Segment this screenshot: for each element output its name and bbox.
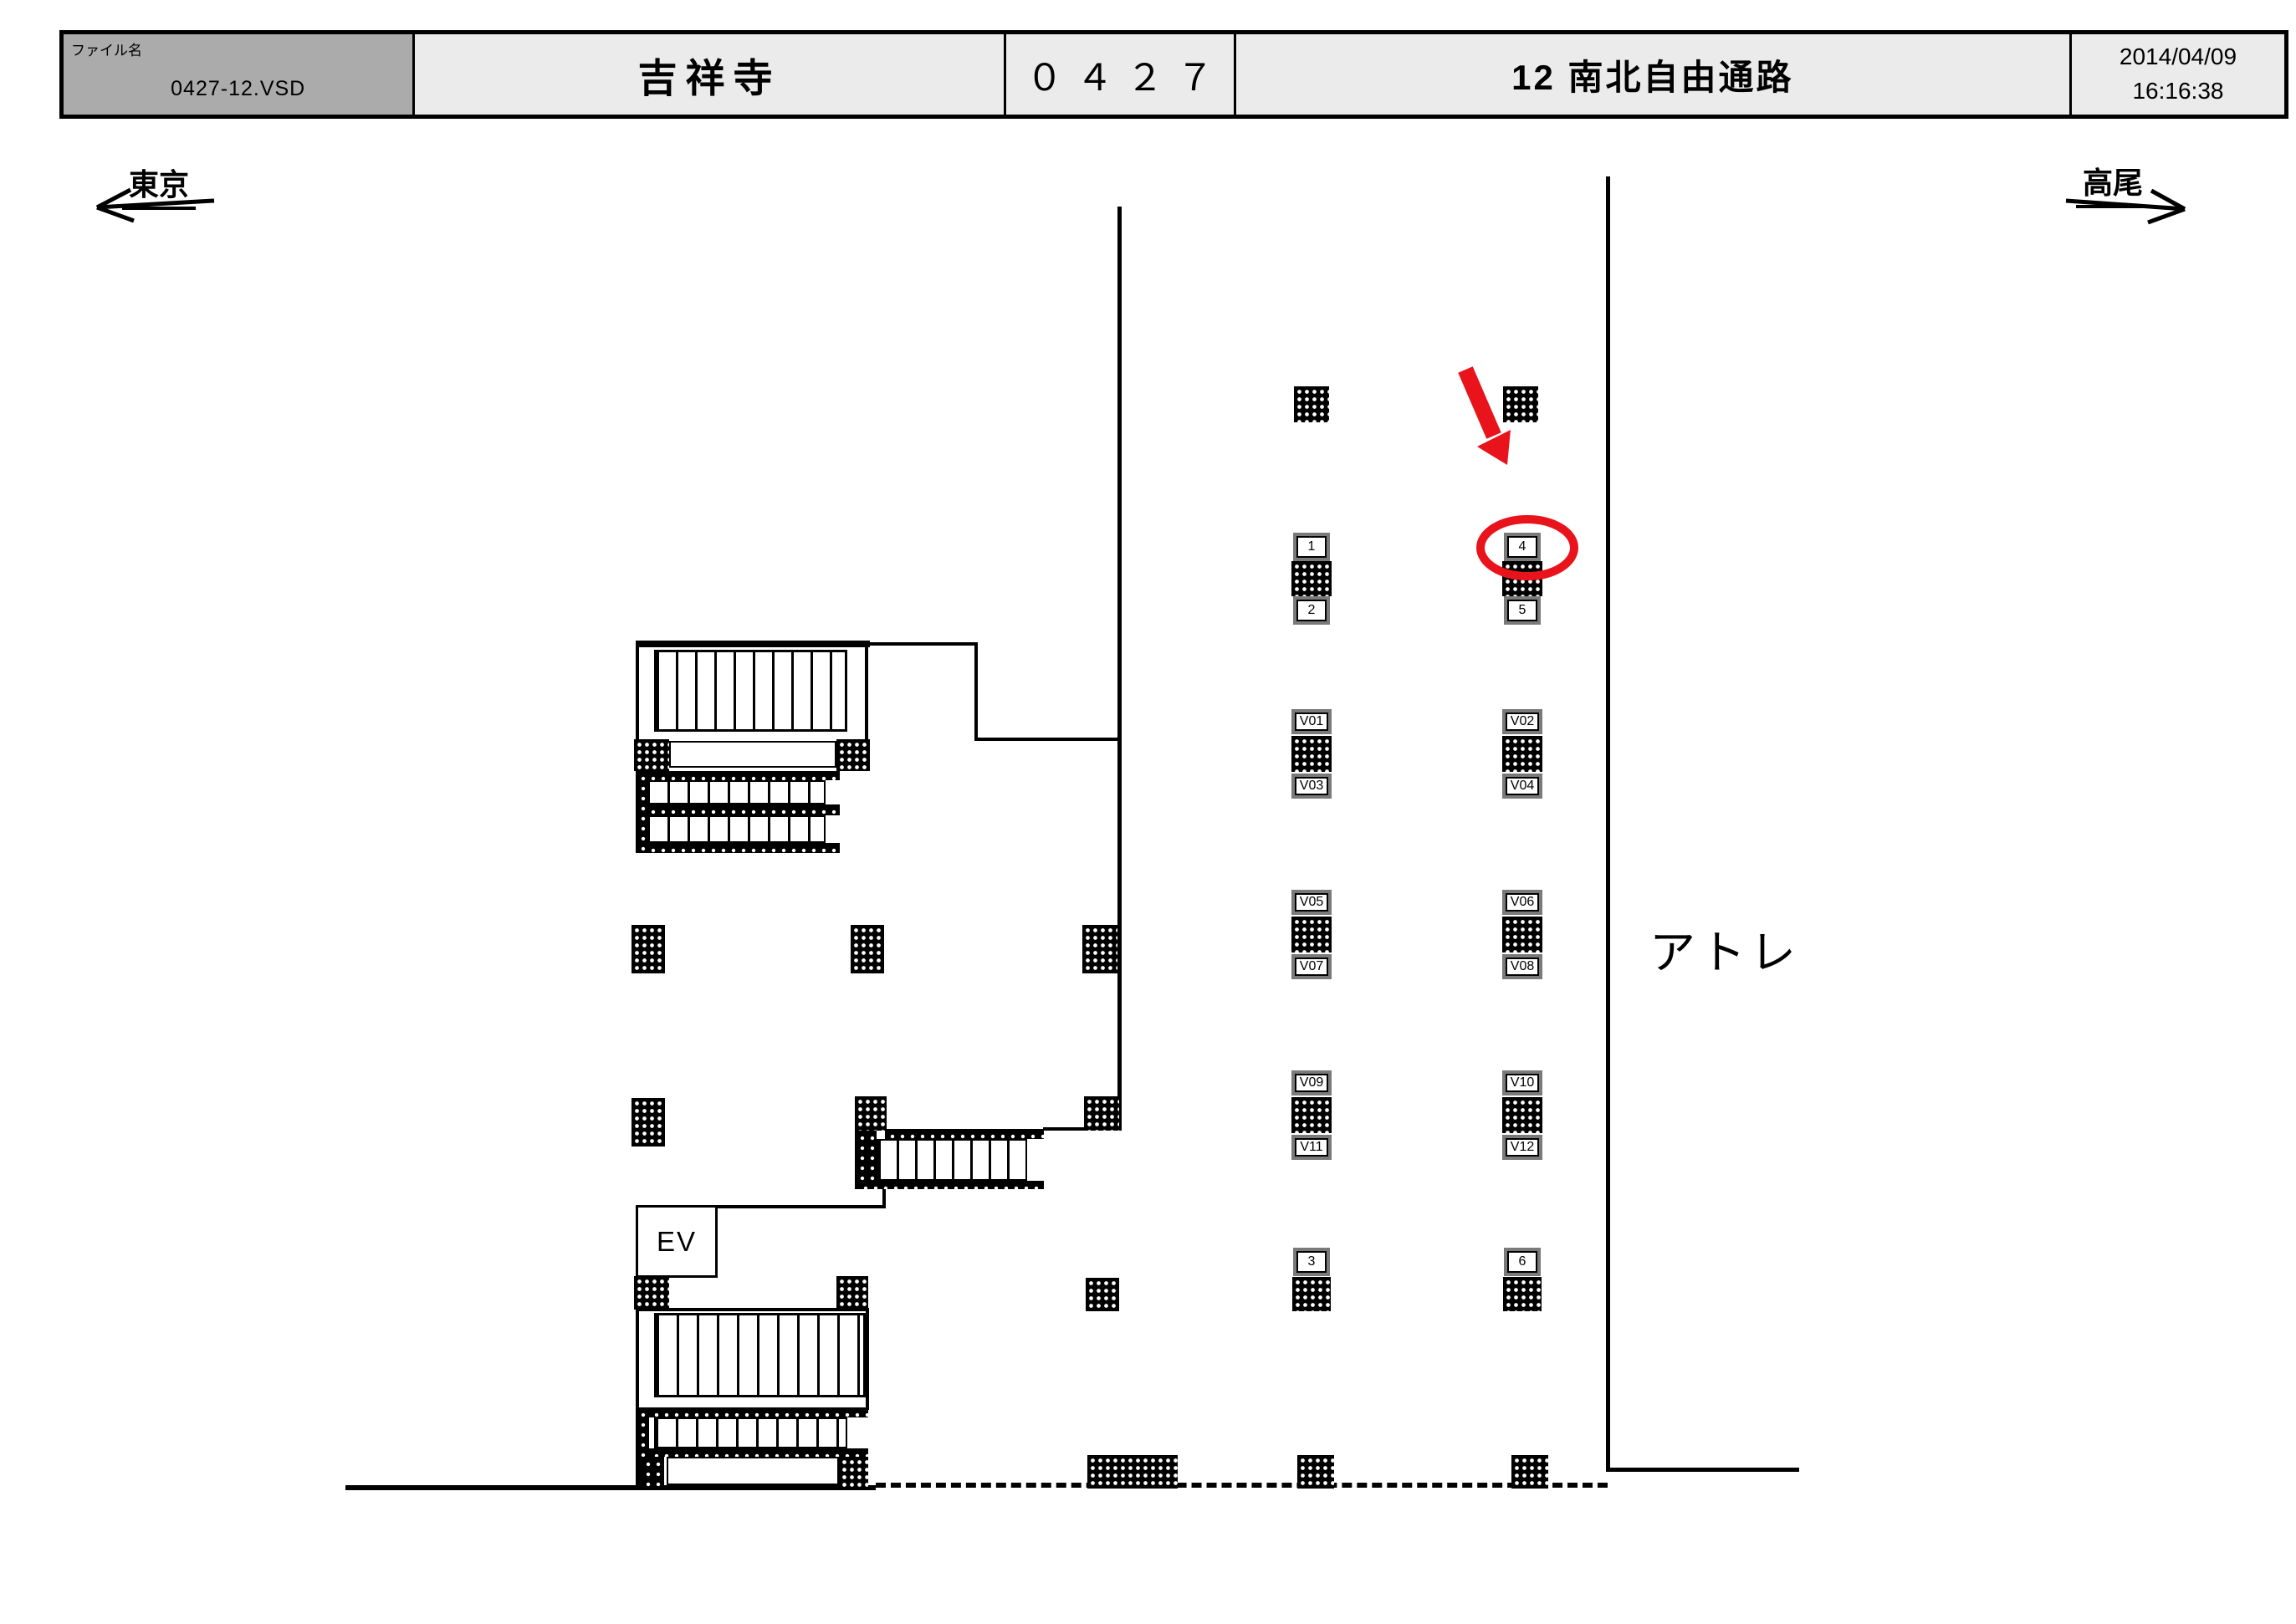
lower-right-wall [866,1308,869,1410]
mid-stair-pillar-left [855,1096,887,1131]
sign-v04: V04 [1502,774,1542,799]
sign-v08: V08 [1502,954,1542,979]
lower-bottom-pillar-left [641,1457,664,1489]
pillar-mid-row4 [836,1276,868,1310]
pillar-v10-v12 [1502,1097,1542,1133]
pillar-v02-v04 [1502,736,1542,772]
pillar-bottom-wide [1087,1455,1178,1489]
sign-2: 2 [1293,596,1330,625]
pillar-row2-a [632,925,665,973]
sign-v07: V07 [1291,954,1332,979]
sign-v09: V09 [1291,1070,1332,1095]
pillar-v05-v07 [1291,917,1332,952]
sign-v03: V03 [1291,774,1332,799]
pillar-row2-b [851,925,884,973]
pillar-sign-3 [1292,1277,1331,1311]
annotation-overlay [0,0,2296,1624]
sign-v12: V12 [1502,1135,1542,1160]
sign-v06: V06 [1502,890,1542,915]
elevator-box: EV [636,1205,718,1278]
sign-4: 4 [1504,533,1541,561]
pillar-v01-v03 [1291,736,1332,772]
lower-big-staircase [654,1313,866,1397]
file-name-value: 0427-12.VSD [64,77,412,101]
lower-stair-row [654,1417,847,1448]
upper-landing [669,741,836,768]
sign-v10: V10 [1502,1070,1542,1095]
lower-bottom-pillar-right [839,1457,868,1489]
pillar-sign-6 [1503,1277,1542,1311]
lower-dotband-2 [639,1448,868,1457]
upper-band-pillar-right [836,739,870,771]
lower-landing [667,1457,839,1485]
sign-v11: V11 [1291,1135,1332,1160]
station-name: 吉祥寺 [412,34,1003,115]
upper-stair-row-1 [646,780,826,804]
baseline-dashed [876,1483,1608,1491]
sign-v01: V01 [1291,709,1332,734]
pillar-v09-v11 [1291,1097,1332,1133]
small-stair-connector-wall [1043,1127,1086,1131]
pillar-top-row-left [1294,386,1329,422]
pillar-row3-a [632,1098,665,1147]
sign-5: 5 [1504,596,1541,625]
file-name-cell: ファイル名 0427-12.VSD [64,34,412,115]
sign-6: 6 [1504,1248,1541,1276]
upper-dotband-left-v [636,771,647,853]
direction-label-takao: 高尾 [2076,159,2150,208]
mid-stair-dotband-bottom [858,1181,1044,1189]
pillar-row2-c [1082,925,1117,973]
lower-dotband-1 [639,1407,868,1417]
mid-stair-pillar-right [1084,1096,1119,1131]
date-value: 2014/04/09 [2120,40,2237,74]
direction-label-tokyo: 東京 [122,161,196,210]
sign-3: 3 [1293,1248,1330,1276]
area-label-atre: アトレ [1649,915,1800,982]
upper-top-extension-wall [868,642,978,646]
pillar-v06-v08 [1502,917,1542,952]
pillar-row4-b [1086,1278,1119,1311]
pillar-top-row-right [1503,386,1538,422]
upper-stair-top-wall [636,641,870,647]
title-block: ファイル名 0427-12.VSD 吉祥寺 ０４２７ 12 南北自由通路 201… [59,30,2288,119]
elevator-bottom-line [636,1308,869,1311]
drawing-title: 12 南北自由通路 [1234,34,2069,115]
upper-dotband-3 [636,843,840,853]
date-time-cell: 2014/04/09 16:16:38 [2069,34,2284,115]
sign-v02: V02 [1502,709,1542,734]
upper-dotband-1 [636,771,840,780]
pillar-below-elevator [634,1276,669,1310]
upper-band-pillar-left [634,739,669,771]
pillar-sign-1-2 [1291,561,1332,596]
atre-boundary-wall-h [1606,1468,1799,1472]
mid-stair-dotband-top [885,1129,1044,1139]
sign-v05: V05 [1291,890,1332,915]
central-wall [1117,207,1122,1131]
sign-1: 1 [1293,533,1330,561]
atre-boundary-wall-v [1606,176,1610,1472]
pillar-sign-4-5 [1502,561,1542,596]
step-right-wall [974,738,1121,741]
station-code: ０４２７ [1004,34,1234,115]
baseline-solid [345,1485,876,1490]
time-value: 16:16:38 [2132,74,2223,109]
file-name-label: ファイル名 [71,38,142,59]
pillar-bottom-right-col [1511,1455,1548,1489]
step-down-wall [974,642,978,741]
upper-dotband-2 [636,804,840,815]
mid-staircase [877,1139,1027,1181]
upper-big-staircase [654,650,847,732]
upper-stair-row-2 [646,815,826,843]
pillar-bottom-left-col [1297,1455,1334,1489]
